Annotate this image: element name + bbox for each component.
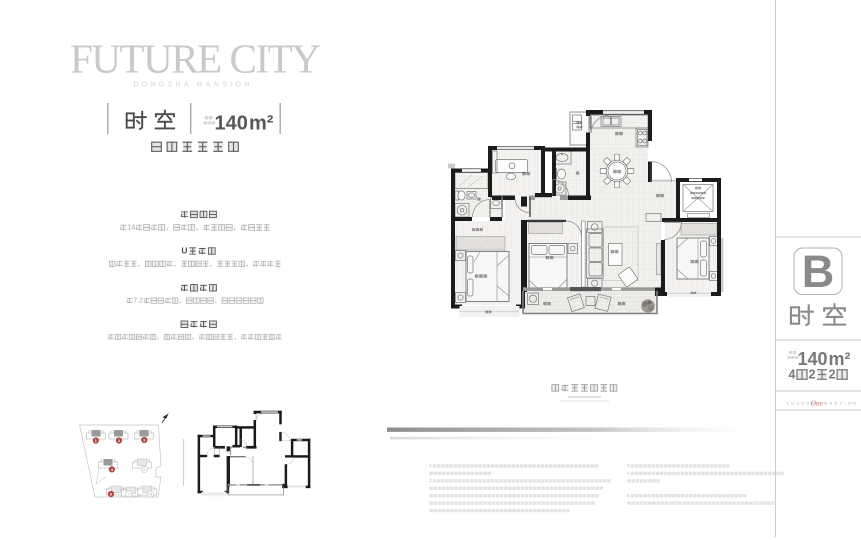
- svg-text:2: 2: [829, 367, 836, 381]
- svg-text:140: 140: [798, 349, 828, 369]
- svg-text:4: 4: [789, 367, 796, 381]
- svg-text:7.2: 7.2: [133, 297, 143, 305]
- svg-text:m²: m²: [829, 349, 851, 369]
- svg-text:14: 14: [127, 223, 135, 232]
- svg-text:2020: 2020: [753, 500, 763, 505]
- svg-text:4.: 4.: [627, 471, 630, 476]
- svg-text:MANSION: MANSION: [824, 401, 858, 406]
- svg-text:2: 2: [809, 367, 816, 381]
- svg-text:One: One: [811, 399, 824, 408]
- svg-text:B: B: [802, 246, 835, 297]
- svg-text:m²: m²: [249, 113, 274, 135]
- svg-text:U: U: [181, 246, 188, 256]
- svg-text:DONGSHA MANSION: DONGSHA MANSION: [133, 82, 252, 89]
- svg-text:140: 140: [215, 113, 248, 135]
- svg-text:5.: 5.: [627, 493, 630, 498]
- svg-text:10: 10: [682, 500, 687, 505]
- svg-text:1.: 1.: [429, 463, 432, 468]
- svg-text:2.: 2.: [429, 478, 432, 483]
- svg-text:2020: 2020: [669, 500, 679, 505]
- svg-text:3.: 3.: [627, 463, 630, 468]
- svg-text:FUTURE CITY: FUTURE CITY: [70, 36, 320, 82]
